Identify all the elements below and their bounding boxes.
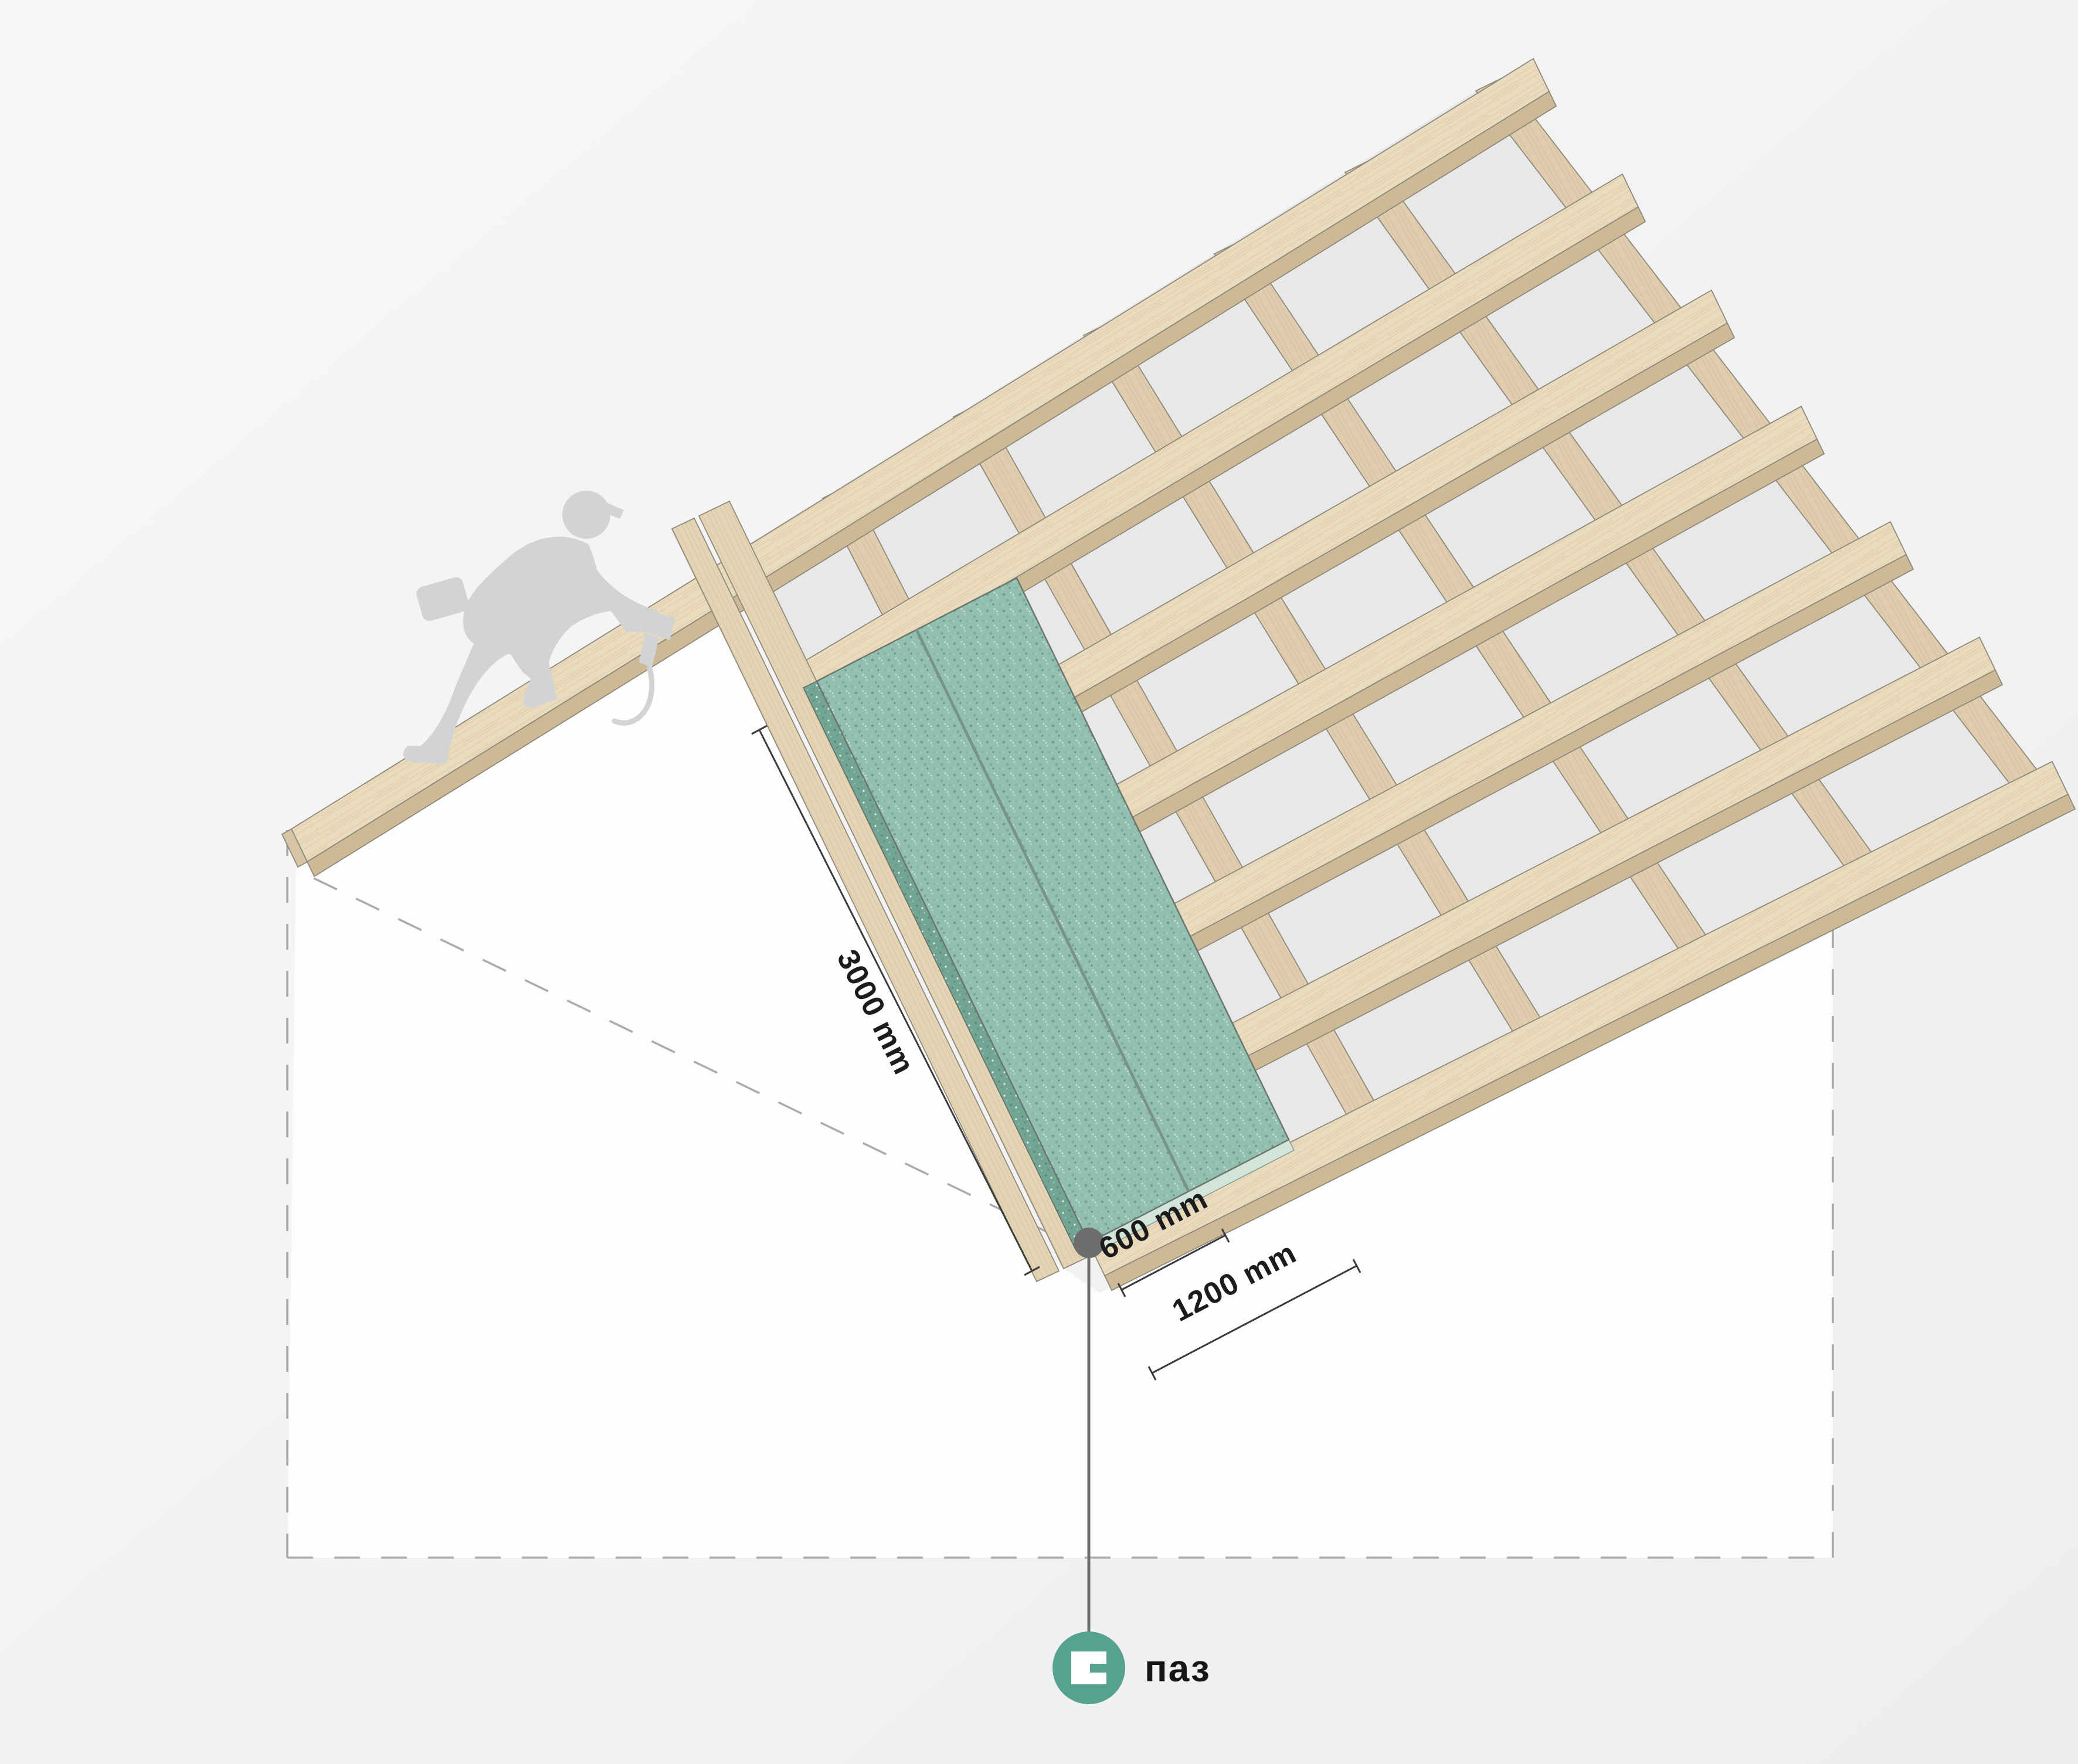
illustration-canvas: 3000 mm 600 mm 1200 mm паз — [0, 0, 2078, 1764]
legend-label: паз — [1145, 1647, 1211, 1690]
worker-head — [562, 491, 610, 539]
